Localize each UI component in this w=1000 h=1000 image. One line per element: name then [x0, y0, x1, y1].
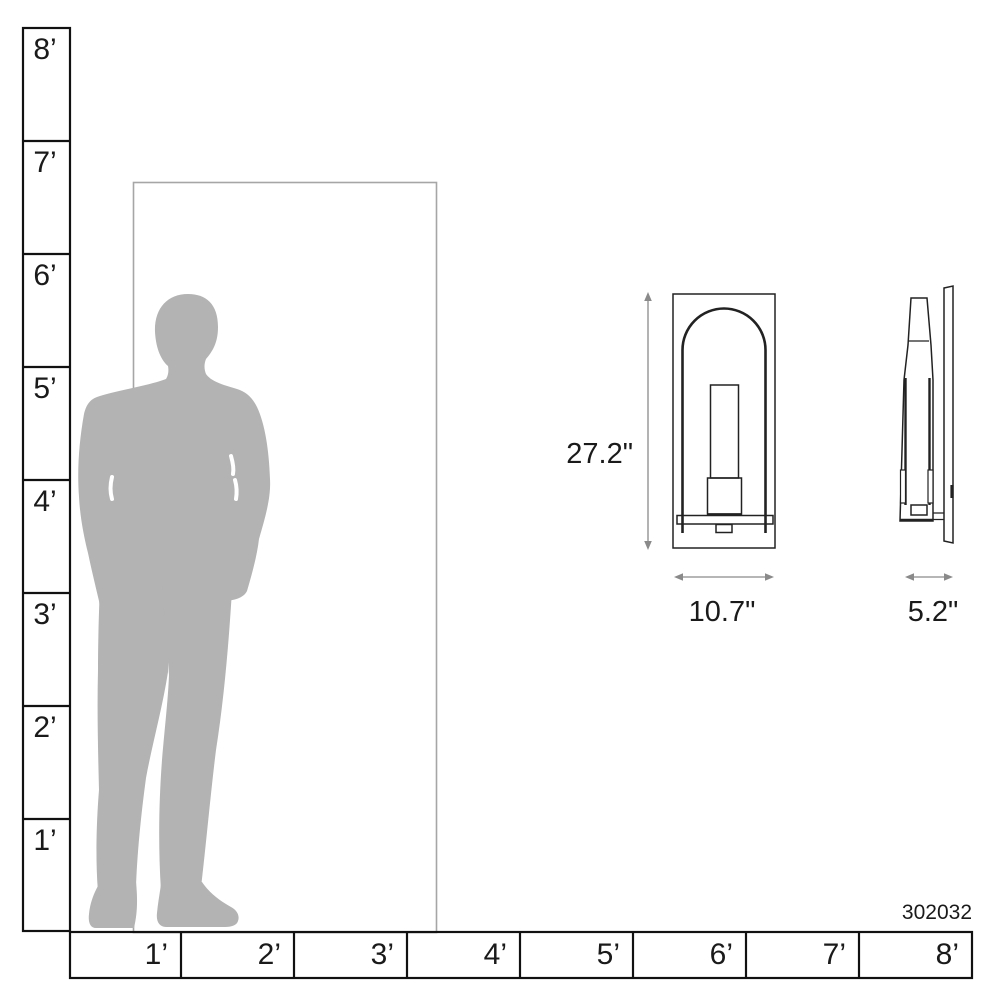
vertical-ruler-label-6ft: 6’ — [23, 259, 67, 293]
vertical-ruler-label-2ft: 2’ — [23, 711, 67, 745]
horizontal-ruler-label-1ft: 1’ — [70, 938, 168, 972]
silhouette-torso — [78, 294, 270, 615]
model-number: 302032 — [822, 901, 972, 925]
side-knob — [911, 505, 927, 515]
front-knob — [716, 525, 732, 533]
front-crossbar — [677, 516, 773, 525]
silhouette-right-shoe — [157, 882, 239, 927]
diagram-canvas — [0, 0, 1000, 1000]
front-socket — [708, 478, 742, 514]
arrow-left-icon — [674, 573, 683, 581]
scale-diagram: 8’ 7’ 6’ 5’ 4’ 3’ 2’ 1’ 1’ 2’ 3’ 4’ 5’ 6… — [0, 0, 1000, 1000]
horizontal-ruler-label-7ft: 7’ — [746, 938, 846, 972]
arrow-up-icon — [644, 292, 652, 301]
vertical-ruler-label-7ft: 7’ — [23, 146, 67, 180]
horizontal-ruler-label-4ft: 4’ — [407, 938, 507, 972]
vertical-ruler-label-4ft: 4’ — [23, 485, 67, 519]
arrow-left-icon — [905, 573, 914, 581]
side-wall-plate — [944, 286, 953, 543]
sconce-front-view — [673, 294, 775, 548]
horizontal-ruler-label-3ft: 3’ — [294, 938, 394, 972]
height-dimension-label: 27.2" — [503, 438, 633, 470]
arrow-down-icon — [644, 541, 652, 550]
width-dimension-label: 10.7" — [652, 596, 792, 628]
arrow-right-icon — [765, 573, 774, 581]
depth-dimension-label: 5.2" — [863, 596, 1000, 628]
vertical-ruler-label-1ft: 1’ — [23, 824, 67, 858]
front-arch — [683, 309, 766, 534]
person-silhouette — [78, 294, 270, 928]
horizontal-ruler-label-2ft: 2’ — [181, 938, 281, 972]
sconce-side-view — [900, 286, 953, 543]
horizontal-ruler-label-8ft: 8’ — [859, 938, 959, 972]
vertical-ruler-label-8ft: 8’ — [23, 33, 67, 67]
silhouette-left-leg — [96, 585, 168, 892]
silhouette-right-leg — [159, 585, 232, 891]
arrow-right-icon — [944, 573, 953, 581]
front-candle-tube — [711, 385, 739, 478]
vertical-ruler-label-3ft: 3’ — [23, 598, 67, 632]
horizontal-ruler-label-6ft: 6’ — [633, 938, 733, 972]
front-outer-frame — [673, 294, 775, 548]
side-connector — [933, 513, 944, 520]
silhouette-left-shoe — [89, 882, 137, 928]
horizontal-ruler-label-5ft: 5’ — [520, 938, 620, 972]
vertical-ruler-label-5ft: 5’ — [23, 372, 67, 406]
